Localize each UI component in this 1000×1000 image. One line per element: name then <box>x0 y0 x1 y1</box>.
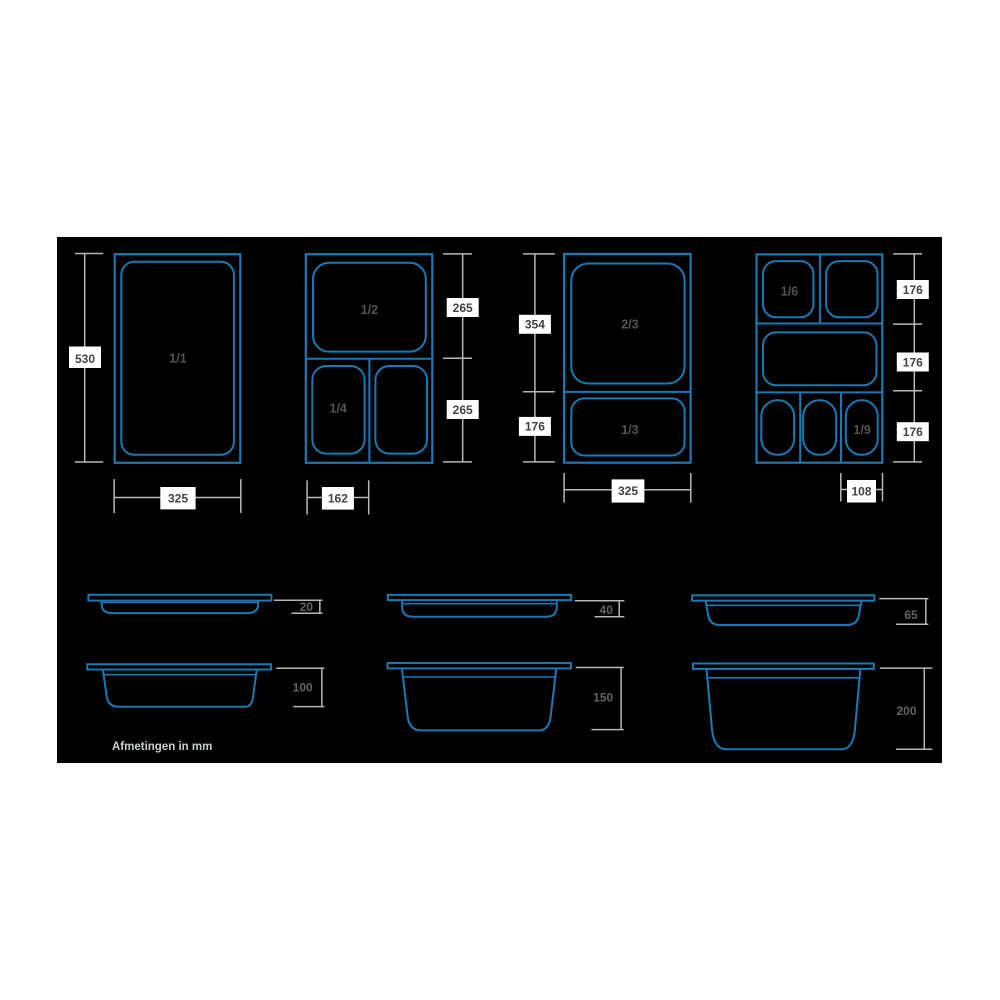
svg-text:Afmetingen in mm: Afmetingen in mm <box>112 741 212 753</box>
svg-text:265: 265 <box>453 403 473 417</box>
svg-text:530: 530 <box>75 352 95 366</box>
svg-text:1/4: 1/4 <box>330 402 347 416</box>
svg-text:65: 65 <box>904 608 918 622</box>
svg-text:265: 265 <box>453 301 473 315</box>
svg-text:176: 176 <box>903 355 923 369</box>
svg-text:162: 162 <box>328 492 348 506</box>
svg-text:1/1: 1/1 <box>169 352 186 366</box>
svg-text:1/6: 1/6 <box>781 284 798 298</box>
svg-text:325: 325 <box>618 484 638 498</box>
svg-text:100: 100 <box>293 681 313 695</box>
svg-text:1/3: 1/3 <box>621 423 638 437</box>
svg-text:176: 176 <box>525 420 545 434</box>
svg-text:354: 354 <box>525 318 545 332</box>
svg-text:176: 176 <box>903 283 923 297</box>
svg-text:20: 20 <box>300 600 314 614</box>
svg-text:176: 176 <box>903 425 923 439</box>
svg-text:325: 325 <box>168 492 188 506</box>
svg-text:150: 150 <box>593 690 613 704</box>
svg-text:108: 108 <box>851 485 871 499</box>
svg-text:200: 200 <box>896 704 916 718</box>
svg-text:1/9: 1/9 <box>853 423 870 437</box>
svg-text:2/3: 2/3 <box>621 318 638 332</box>
svg-text:40: 40 <box>600 603 614 617</box>
svg-text:1/2: 1/2 <box>361 303 378 317</box>
